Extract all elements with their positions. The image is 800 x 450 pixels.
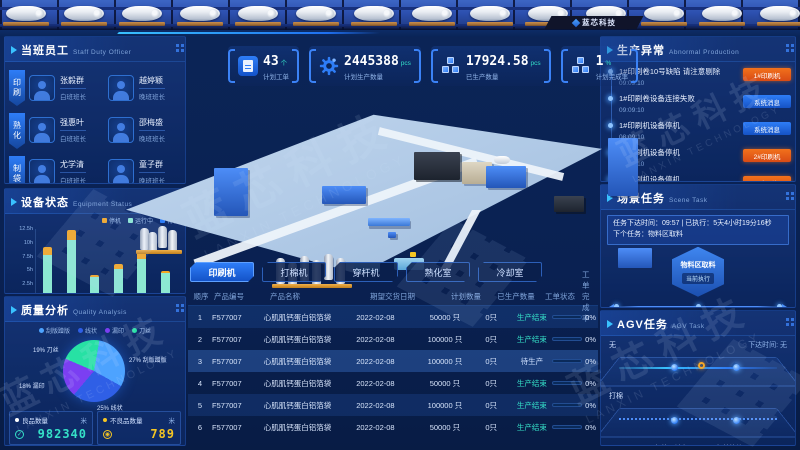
- cell-plan: 50000 只: [419, 422, 471, 433]
- stat-label: 良品数量: [22, 415, 48, 425]
- agv-marker-icon: [698, 362, 705, 369]
- storage-tank: [158, 226, 167, 248]
- kpi-icon-gear: [319, 56, 339, 76]
- staff-name: 尤学清: [60, 159, 86, 173]
- bar-segment-运行中: [43, 255, 52, 294]
- bar-印刷: [43, 247, 52, 294]
- scene-task-info: 任务下达时间：09:57 | 已执行：5天4小时19分16秒 下个任务：物料区取…: [607, 215, 789, 245]
- kpi-value-row: 2445388pcs: [344, 52, 411, 70]
- legend-item: 停机: [102, 216, 121, 225]
- logo-gem-icon: [571, 18, 579, 26]
- cell-plan: 50000 只: [419, 378, 471, 389]
- kpi-value: 2445388: [344, 54, 399, 69]
- agv-node-icon: [733, 364, 740, 371]
- tab-打棉机[interactable]: 打棉机: [262, 262, 326, 282]
- col-header: 顺序: [188, 291, 214, 302]
- staff-name: 张毅群: [60, 75, 86, 89]
- abnormal-badge: 系统消息: [743, 95, 791, 108]
- panel-title: 质量分析: [21, 302, 69, 318]
- panel-subtitle: Abnormal Production: [669, 49, 739, 56]
- stat-unit: 米: [81, 415, 88, 425]
- sofa-cushion: [410, 252, 416, 257]
- staff-role: 白班班长: [60, 133, 86, 143]
- chevron-right-icon: [11, 198, 17, 206]
- panel-dots-icon: [786, 192, 789, 195]
- cell-code: F577007: [212, 379, 264, 388]
- cell-status: 生产结束: [512, 378, 553, 389]
- stat-bottom: ◉789: [103, 427, 175, 441]
- kpi-value: 43: [263, 54, 279, 69]
- agv-task-name: 无: [609, 340, 616, 350]
- agv-point-label: 打棉下料点: [655, 442, 688, 446]
- abnormal-badge: 2#印刷机: [743, 149, 791, 162]
- legend-swatch: [132, 328, 137, 333]
- cell-seq: 4: [188, 379, 212, 388]
- cell-status: 生产结束: [512, 334, 553, 345]
- cell-date: 2022-02-08: [356, 357, 419, 366]
- panel-title: 当班员工: [21, 42, 69, 58]
- dashboard-root: { "header": { "logo_text": "蓝芯科技" }, "wa…: [0, 0, 800, 450]
- factory-3d-scene: [126, 90, 602, 280]
- timeline-dot: [777, 304, 782, 308]
- col-header: 产品名称: [270, 291, 370, 302]
- cell-seq: 2: [188, 335, 212, 344]
- abnormal-time: 09:09:10: [619, 80, 795, 87]
- tab-印刷机[interactable]: 印刷机: [190, 262, 254, 282]
- bar-segment-待机: [67, 294, 76, 295]
- staff-tab-1[interactable]: 熟化: [9, 113, 25, 149]
- panel-title: 设备状态: [21, 194, 69, 210]
- avatar: [29, 159, 55, 184]
- brand-logo: 蓝芯科技: [545, 16, 644, 29]
- kpi-text: 2445388pcs计划生产数量: [344, 52, 411, 81]
- chevron-right-icon: [11, 46, 17, 54]
- cell-status: 生产结束: [512, 422, 553, 433]
- kpi-计划生产数量: 2445388pcs计划生产数量: [309, 46, 421, 86]
- progress-pct: 0%: [585, 401, 596, 410]
- yarn-spool: [760, 6, 800, 21]
- factory-photo-strip: [0, 0, 800, 30]
- panel-agv: AGV任务 AGV Task 无下达时间: 无打棉打棉下料点打棉等待区: [600, 310, 796, 446]
- legend-item: 刀丝: [132, 326, 151, 335]
- kpi-label: 计划生产数量: [344, 71, 411, 81]
- cube-icon: [572, 66, 579, 73]
- cell-name: 心肌肌钙蛋白铝箔袋: [264, 422, 356, 433]
- stat-value: 982340: [38, 427, 87, 441]
- legend-label: 停机: [109, 216, 121, 225]
- legend-label: 漏印: [112, 326, 124, 335]
- stat-top: 不良品数量米: [103, 415, 175, 425]
- kpi-value: 17924.58: [466, 54, 529, 69]
- abnormal-item[interactable]: 1#印刷卷设备连接失败09:09:10系统消息: [619, 93, 795, 119]
- kpi-text: 17924.58pcs已生产数量: [466, 52, 541, 81]
- panel-dots-icon: [176, 44, 179, 47]
- legend-label: 刀丝: [139, 326, 151, 335]
- bar-segment-停机: [43, 247, 52, 255]
- brand-logo-text: 蓝芯科技: [582, 17, 616, 28]
- abnormal-time: 09:09:10: [619, 107, 795, 114]
- machine-tab-bar: 印刷机打棉机穿杆机熟化室冷却室: [190, 262, 542, 282]
- cell-progress: 0%: [552, 335, 598, 344]
- chevron-right-icon: [607, 320, 613, 328]
- machine-tower: [608, 138, 638, 196]
- panel-subtitle: Scene Task: [669, 197, 707, 204]
- panel-scene-task: 场景任务 Scene Task 任务下达时间：09:57 | 已执行：5天4小时…: [600, 184, 796, 308]
- abnormal-item[interactable]: 4#印刷机设备停机08:09:104#印刷机: [619, 174, 795, 182]
- yarn-spool: [702, 6, 742, 21]
- agv-track: [619, 367, 777, 369]
- abnormal-message: 1#印刷机设备停机: [619, 120, 737, 131]
- cell-progress: 0%: [552, 379, 598, 388]
- staff-name: 越婷颖: [139, 75, 165, 89]
- progress-bar: [552, 315, 582, 319]
- panel-dots-icon: [786, 318, 789, 321]
- staff-text: 尤学清白班班长: [60, 159, 86, 184]
- bar-segment-待机: [90, 294, 99, 295]
- y-tick: 2.5h: [12, 281, 33, 287]
- agv-node-icon: [671, 417, 678, 424]
- table-row[interactable]: 2F577007心肌肌钙蛋白铝箔袋2022-02-08100000 只0只生产结…: [188, 328, 598, 350]
- panel-header: 当班员工 Staff Duty Officer: [5, 37, 185, 62]
- staff-card: 尤学清白班班长: [29, 152, 102, 184]
- abnormal-message: 1#印刷卷设备连接失败: [619, 93, 737, 104]
- pie-label: 19% 刀丝: [33, 345, 59, 354]
- agv-node-icon: [733, 417, 740, 424]
- panel-header: 质量分析 Quality Analysis: [5, 297, 185, 322]
- kpi-label: 计划完成率: [596, 71, 629, 81]
- staff-tab-0[interactable]: 印刷: [9, 70, 25, 106]
- kpi-unit: %: [606, 60, 612, 67]
- panel-dots-icon: [176, 304, 179, 307]
- progress-pct: 0%: [585, 423, 596, 432]
- legend-swatch: [39, 328, 44, 333]
- panel-dots-icon: [786, 44, 789, 47]
- cube-icon: [442, 66, 449, 73]
- kpi-计划完成率: 1%计划完成率: [561, 46, 639, 86]
- panel-subtitle: Quality Analysis: [73, 309, 127, 316]
- abnormal-item[interactable]: 2#印刷机设备停机08:09:102#印刷机: [619, 147, 795, 173]
- staff-text: 张毅群白班班长: [60, 75, 86, 101]
- kpi-text: 43个计划工单: [263, 52, 289, 81]
- kpi-label: 已生产数量: [466, 71, 541, 81]
- timeline-dot: [614, 304, 619, 308]
- progress-bar: [552, 403, 582, 407]
- cube-icon: [577, 57, 584, 64]
- bar-segment-待机: [43, 294, 52, 295]
- cell-plan: 100000 只: [419, 356, 471, 367]
- agv-route-name: 打棉: [609, 391, 787, 401]
- current-task-state: 当前执行: [682, 273, 714, 284]
- machine-press: [414, 152, 460, 180]
- staff-text: 强惠叶白班班长: [60, 117, 86, 143]
- cell-seq: 1: [188, 313, 212, 322]
- bar-segment-运行中: [114, 269, 123, 294]
- tab-穿杆机[interactable]: 穿杆机: [334, 262, 398, 282]
- staff-role: 白班班长: [60, 175, 86, 184]
- col-header: 产品编号: [214, 291, 270, 302]
- kpi-unit: pcs: [531, 60, 541, 67]
- legend-item: 线状: [78, 326, 97, 335]
- agv-route-0: 无下达时间: 无: [609, 340, 787, 387]
- cell-date: 2022-02-08: [356, 401, 419, 410]
- agv-meta: 无下达时间: 无: [609, 340, 787, 350]
- pallet: [136, 250, 182, 254]
- white-roll: [494, 156, 510, 164]
- stat-dot-icon: [103, 418, 107, 422]
- staff-card: 强惠叶白班班长: [29, 110, 102, 150]
- staff-name: 强惠叶: [60, 117, 86, 131]
- agv-node-icon: [671, 364, 678, 371]
- quality-stat-card: 良品率✓98%: [185, 411, 186, 445]
- progress-bar: [552, 337, 582, 341]
- yarn-spool: [354, 6, 394, 21]
- machine-box: [618, 248, 652, 268]
- panel-subtitle: AGV Task: [672, 323, 705, 330]
- cell-status: 待生产: [512, 356, 553, 367]
- legend-swatch: [105, 328, 110, 333]
- kpi-label: 计划工单: [263, 71, 289, 81]
- abnormal-time: 08:09:10: [619, 161, 795, 168]
- check-circle-icon: ✓: [15, 430, 24, 439]
- cell-code: F577007: [212, 313, 264, 322]
- yarn-spool: [64, 6, 104, 21]
- abnormal-badge: 4#印刷机: [743, 176, 791, 182]
- agv-track: 打棉下料点打棉等待区: [619, 418, 777, 420]
- table-row[interactable]: 3F577007心肌肌钙蛋白铝箔袋2022-02-08100000 只0只待生产…: [188, 350, 598, 372]
- cell-produced: 0只: [471, 312, 512, 323]
- cell-seq: 3: [188, 357, 212, 366]
- panel-header: AGV任务 AGV Task: [601, 311, 795, 336]
- machine-roller: [322, 186, 366, 204]
- kpi-unit: 个: [281, 60, 288, 67]
- current-task-name: 物料区取料: [681, 260, 716, 270]
- stat-value: 789: [150, 427, 175, 441]
- legend-item: 刮版蹭版: [39, 326, 70, 335]
- cell-produced: 0只: [471, 378, 512, 389]
- legend-label: 线状: [85, 326, 97, 335]
- pie-label: 18% 漏印: [19, 381, 45, 390]
- bar-segment-运行中: [90, 277, 99, 294]
- cell-name: 心肌肌钙蛋白铝箔袋: [264, 312, 356, 323]
- kpi-value-row: 17924.58pcs: [466, 52, 541, 70]
- progress-pct: 0%: [585, 313, 596, 322]
- cell-progress: 0%: [552, 357, 598, 366]
- table-row[interactable]: 6F577007心肌肌钙蛋白铝箔袋2022-02-0850000 只0只生产结束…: [188, 416, 598, 438]
- kpi-unit: pcs: [401, 60, 411, 67]
- agv-plane: [609, 353, 787, 387]
- orders-table: 顺序产品编号产品名称期望交货日期计划数量已生产数量工单状态工单完成率 1F577…: [188, 288, 598, 446]
- panel-subtitle: Equipment Status: [73, 201, 132, 208]
- pie: [63, 340, 125, 402]
- kpi-icon-clipboard: [238, 56, 258, 76]
- cell-progress: 0%: [552, 401, 598, 410]
- cube-icon: [582, 66, 589, 73]
- factory-floor: [126, 90, 602, 280]
- cell-plan: 100000 只: [419, 400, 471, 411]
- cell-plan: 50000 只: [419, 312, 471, 323]
- stat-bottom: ✓982340: [15, 427, 87, 441]
- timeline-dot-icon: [608, 96, 613, 101]
- abnormal-time: 08:09:10: [619, 134, 795, 141]
- agv-route-1: 打棉打棉下料点打棉等待区: [609, 391, 787, 438]
- cell-progress: 0%: [552, 423, 598, 432]
- cell-name: 心肌肌钙蛋白铝箔袋: [264, 356, 356, 367]
- kpi-text: 1%计划完成率: [596, 52, 629, 81]
- cell-code: F577007: [212, 335, 264, 344]
- bar-熟化: [90, 275, 99, 294]
- cell-code: F577007: [212, 423, 264, 432]
- kpi-value-row: 1%: [596, 52, 629, 70]
- legend-swatch: [78, 328, 83, 333]
- timeline-dot: [696, 304, 701, 308]
- machine-block: [554, 196, 584, 212]
- staff-role: 白班班长: [60, 91, 86, 101]
- kpi-计划工单: 43个计划工单: [228, 46, 299, 86]
- bar-segment-停机: [67, 230, 76, 241]
- abnormal-badge: 1#印刷机: [743, 68, 791, 81]
- pie-label: 27% 刮版蹭版: [129, 355, 167, 364]
- col-header: 工单状态: [538, 291, 582, 302]
- cell-date: 2022-02-08: [356, 423, 419, 432]
- table-row[interactable]: 4F577007心肌肌钙蛋白铝箔袋2022-02-0850000 只0只生产结束…: [188, 372, 598, 394]
- cell-produced: 0只: [471, 422, 512, 433]
- col-header: 期望交货日期: [370, 291, 438, 302]
- timeline-dot-icon: [608, 123, 613, 128]
- yarn-spool: [238, 6, 278, 21]
- bar-segment-待机: [137, 294, 146, 295]
- stat-top: 良品数量米: [15, 415, 87, 425]
- yarn-spool: [644, 6, 684, 21]
- stat-unit: 米: [169, 415, 176, 425]
- yarn-spool: [122, 6, 162, 21]
- cell-seq: 5: [188, 401, 212, 410]
- y-tick: 10h: [12, 240, 33, 246]
- progress-bar: [552, 425, 582, 429]
- agv-dispatch-time: 下达时间: 无: [748, 340, 787, 350]
- progress-bar: [552, 359, 582, 363]
- tab-熟化室[interactable]: 熟化室: [406, 262, 470, 282]
- y-tick: 5h: [12, 267, 33, 273]
- legend-swatch: [102, 218, 107, 223]
- office-chair: [388, 232, 396, 238]
- bar-冷却: [114, 264, 123, 294]
- staff-card: 张毅群白班班长: [29, 68, 102, 108]
- quality-stat-card: 良品数量米✓982340: [9, 411, 93, 445]
- progress-pct: 0%: [585, 379, 596, 388]
- cell-status: 生产结束: [512, 400, 553, 411]
- stat-label: 不良品数量: [110, 415, 143, 425]
- col-header: 计划数量: [438, 291, 494, 302]
- chevron-right-icon: [11, 306, 17, 314]
- machine-frame: [214, 168, 248, 216]
- bar-segment-待机: [161, 294, 170, 295]
- table-header-row: 顺序产品编号产品名称期望交货日期计划数量已生产数量工单状态工单完成率: [188, 288, 598, 306]
- table-row[interactable]: 5F577007心肌肌钙蛋白铝箔袋2022-02-08100000 只0只生产结…: [188, 394, 598, 416]
- cell-plan: 100000 只: [419, 334, 471, 345]
- kpi-value: 1: [596, 54, 604, 69]
- kpi-已生产数量: 17924.58pcs已生产数量: [431, 46, 551, 86]
- yarn-spool: [6, 6, 46, 21]
- progress-pct: 0%: [585, 357, 596, 366]
- abnormal-badge: 系统消息: [743, 122, 791, 135]
- quality-stat-card: 不良品数量米◉789: [97, 411, 181, 445]
- cube-icon: [452, 66, 459, 73]
- avatar: [29, 75, 55, 101]
- kpi-row: 43个计划工单2445388pcs计划生产数量17924.58pcs已生产数量1…: [228, 46, 600, 86]
- y-tick: 12.5h: [12, 226, 33, 232]
- cell-progress: 0%: [552, 313, 598, 322]
- kpi-value-row: 43个: [263, 52, 289, 70]
- machine-winder: [486, 166, 526, 188]
- table-row[interactable]: 1F577007心肌肌钙蛋白铝箔袋2022-02-0850000 只0只生产结束…: [188, 306, 598, 328]
- staff-tab-2[interactable]: 制袋: [9, 156, 25, 184]
- kpi-icon-boxes: [441, 56, 461, 76]
- check-circle-icon: ◉: [103, 430, 112, 439]
- agv-point-label: 打棉等待区: [717, 442, 750, 446]
- panel-title: AGV任务: [617, 316, 668, 332]
- yarn-spool: [412, 6, 452, 21]
- y-tick: 7.5h: [12, 254, 33, 260]
- cube-icon: [447, 57, 454, 64]
- panel-subtitle: Staff Duty Officer: [73, 49, 131, 56]
- cell-code: F577007: [212, 401, 264, 410]
- cell-code: F577007: [212, 357, 264, 366]
- yarn-spool: [296, 6, 336, 21]
- quality-pie-chart: 27% 刮版蹭版25% 线状18% 漏印19% 刀丝: [5, 337, 185, 409]
- col-header: 已生产数量: [494, 291, 538, 302]
- pie-label: 25% 线状: [97, 403, 123, 412]
- cell-name: 心肌肌钙蛋白铝箔袋: [264, 378, 356, 389]
- abnormal-item[interactable]: 1#印刷机设备停机08:09:10系统消息: [619, 120, 795, 146]
- legend-item: 漏印: [105, 326, 124, 335]
- cell-date: 2022-02-08: [356, 313, 419, 322]
- cell-name: 心肌肌钙蛋白铝箔袋: [264, 400, 356, 411]
- stat-dot-icon: [15, 418, 19, 422]
- progress-bar: [552, 381, 582, 385]
- arrow-right-icon: [782, 304, 787, 308]
- progress-pct: 0%: [585, 335, 596, 344]
- panel-quality: 质量分析 Quality Analysis 刮版蹭版线状漏印刀丝 27% 刮版蹭…: [4, 296, 186, 446]
- bar-复合: [67, 230, 76, 294]
- yarn-spool: [180, 6, 220, 21]
- cell-status: 生产结束: [512, 312, 553, 323]
- storage-tank: [168, 230, 177, 252]
- agv-plane: 打棉下料点打棉等待区: [609, 404, 787, 438]
- kpi-icon-boxes: [571, 56, 591, 76]
- cell-produced: 0只: [471, 356, 512, 367]
- office-desk: [368, 218, 410, 226]
- current-task-hexagon[interactable]: 物料区取料 当前执行: [672, 247, 724, 297]
- cell-produced: 0只: [471, 400, 512, 411]
- bar-segment-待机: [114, 294, 123, 295]
- abnormal-item[interactable]: 1#印刷卷10号缺陷 请注意剔除09:09:101#印刷机: [619, 66, 795, 92]
- legend-label: 刮版蹭版: [46, 326, 70, 335]
- cell-date: 2022-02-08: [356, 379, 419, 388]
- cell-seq: 6: [188, 423, 212, 432]
- tab-冷却室[interactable]: 冷却室: [478, 262, 542, 282]
- avatar: [29, 117, 55, 143]
- yarn-spool: [470, 6, 510, 21]
- cell-date: 2022-02-08: [356, 335, 419, 344]
- cell-name: 心肌肌钙蛋白铝箔袋: [264, 334, 356, 345]
- bar-segment-运行中: [67, 240, 76, 293]
- cell-produced: 0只: [471, 334, 512, 345]
- scene-task-timeline: [609, 303, 787, 308]
